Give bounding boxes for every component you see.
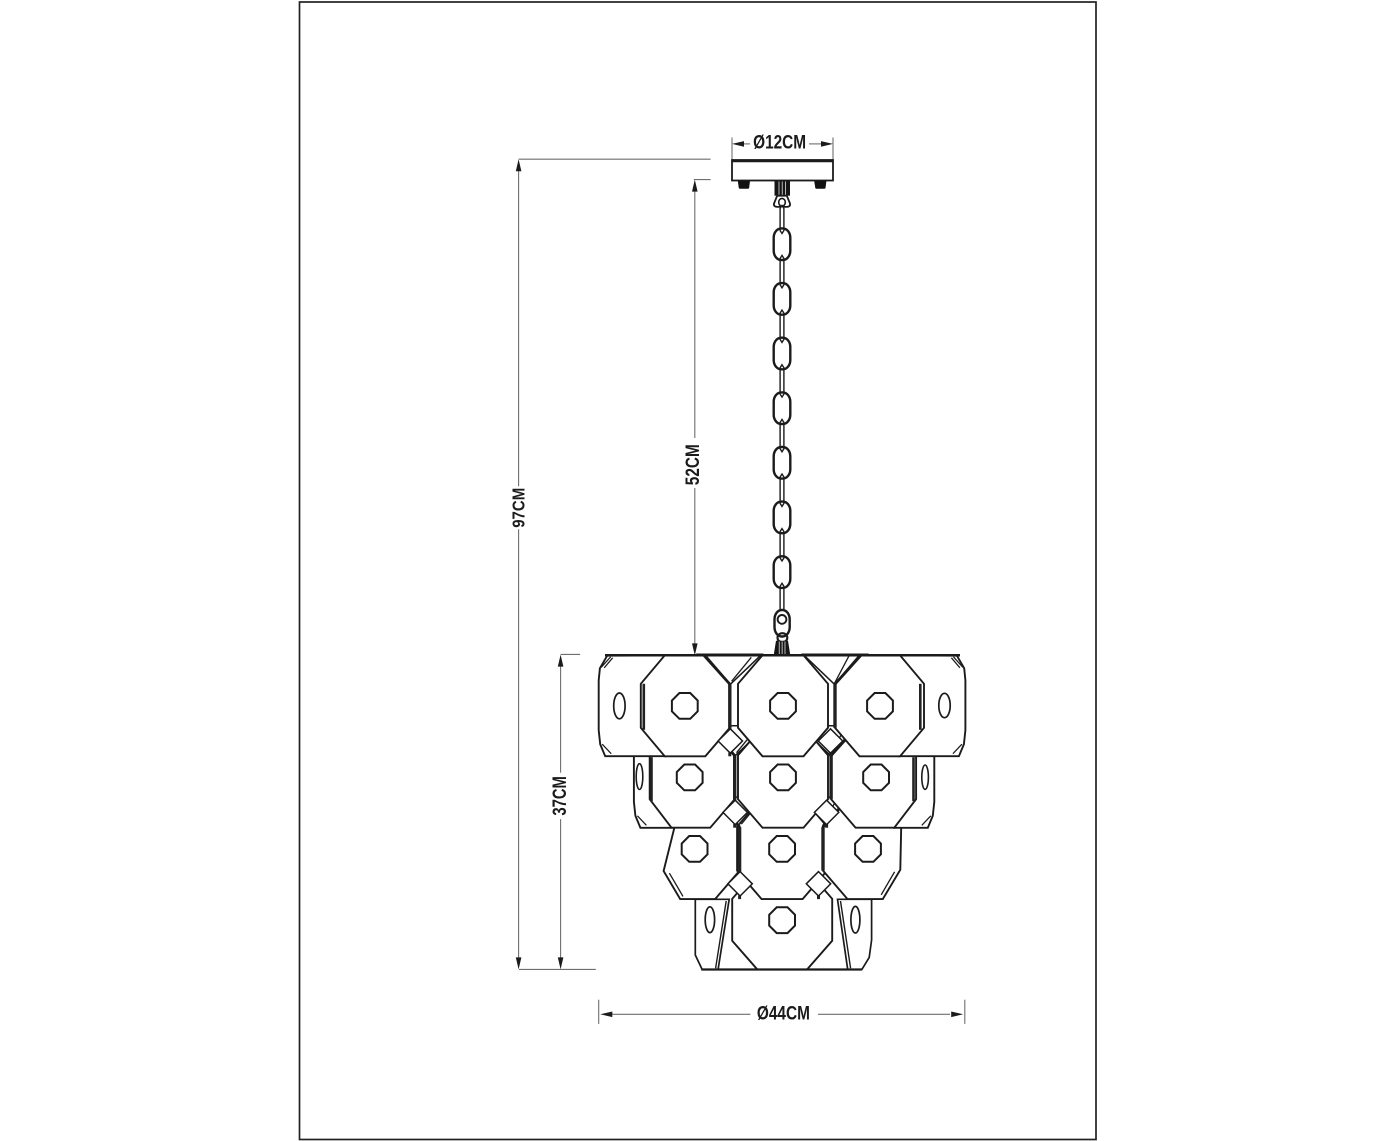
svg-text:Ø12CM: Ø12CM [753,132,806,153]
svg-text:97CM: 97CM [508,488,528,528]
svg-text:52CM: 52CM [683,444,704,485]
svg-text:Ø44CM: Ø44CM [757,1003,810,1025]
svg-text:37CM: 37CM [550,776,571,816]
